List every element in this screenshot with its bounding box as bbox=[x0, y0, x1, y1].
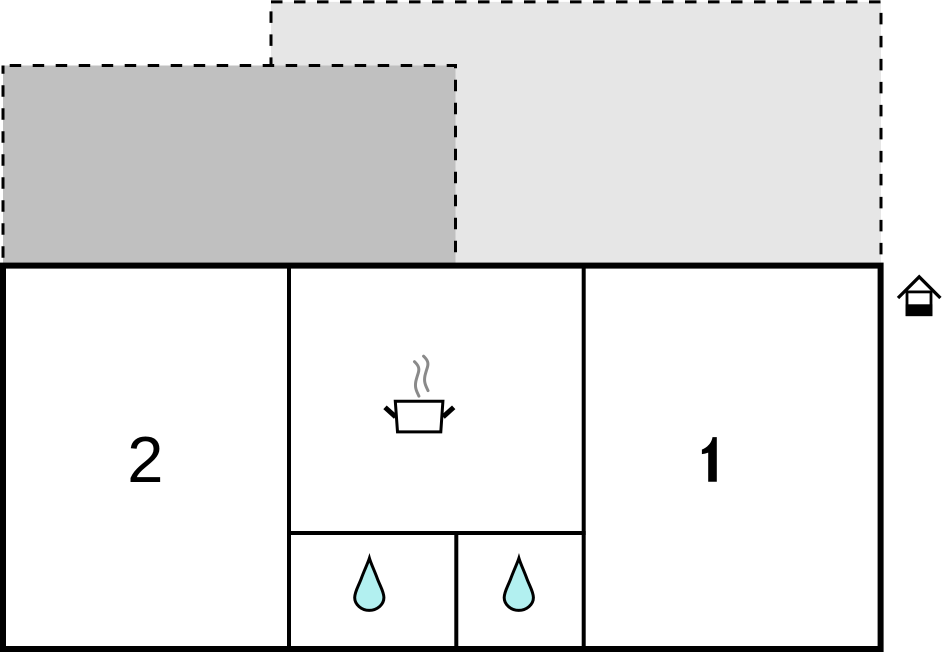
svg-text:2: 2 bbox=[127, 423, 163, 496]
